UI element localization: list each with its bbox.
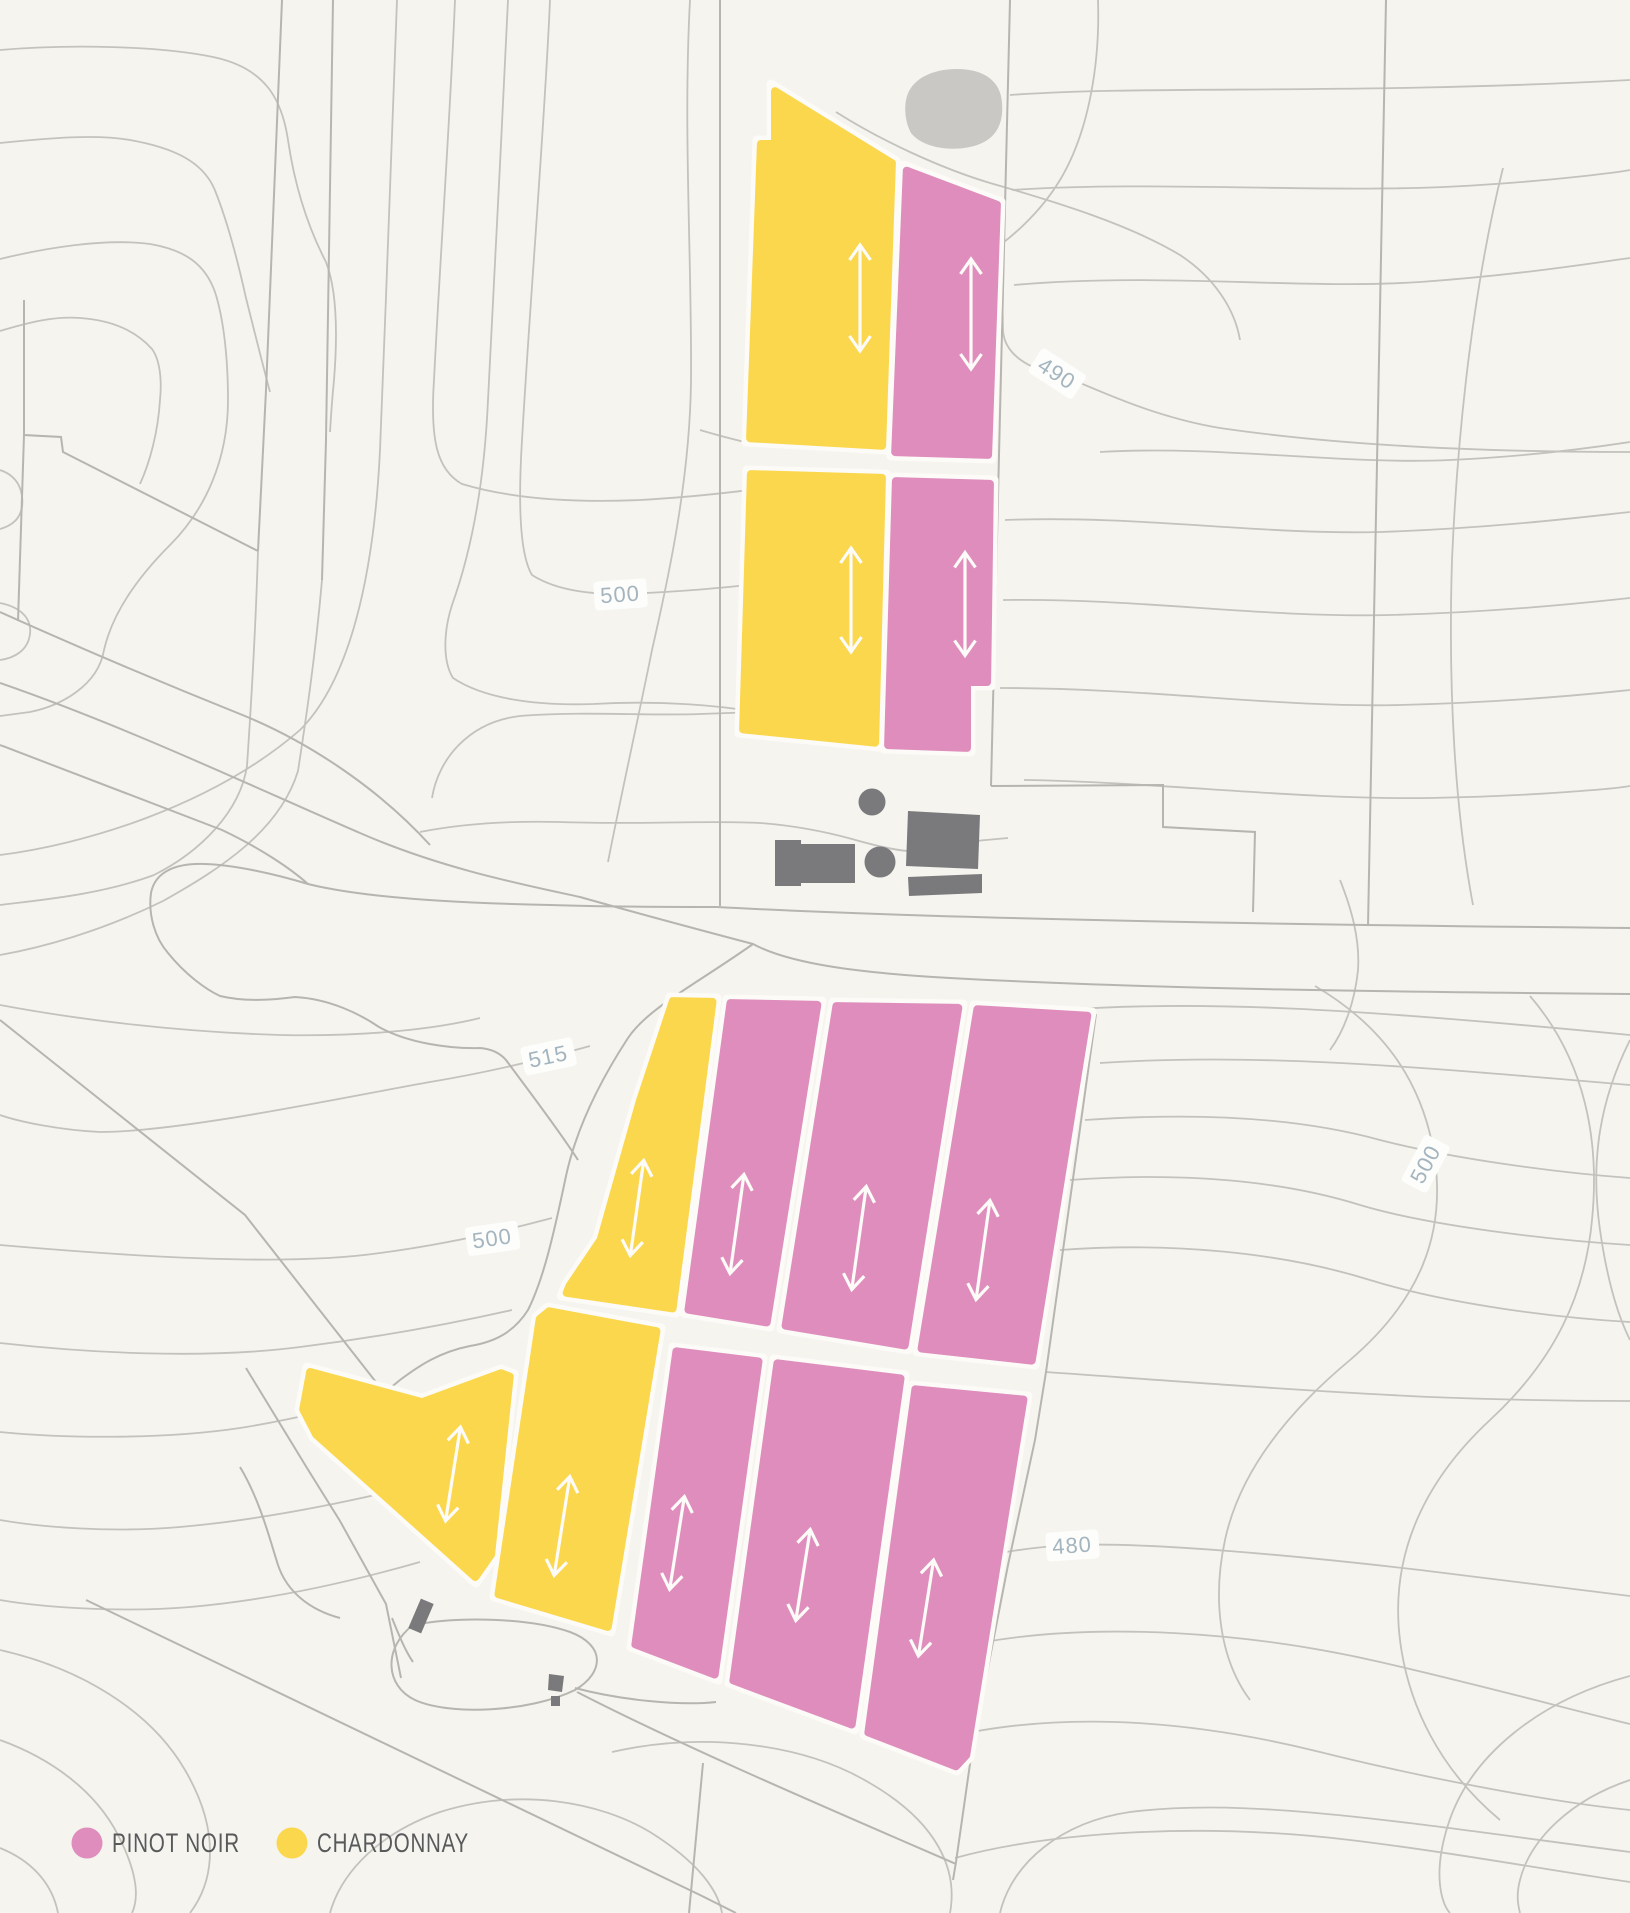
svg-text:480: 480 [1051, 1532, 1092, 1560]
svg-text:CHARDONNAY: CHARDONNAY [317, 1828, 469, 1858]
svg-text:500: 500 [599, 581, 640, 609]
svg-text:PINOT NOIR: PINOT NOIR [112, 1828, 240, 1858]
